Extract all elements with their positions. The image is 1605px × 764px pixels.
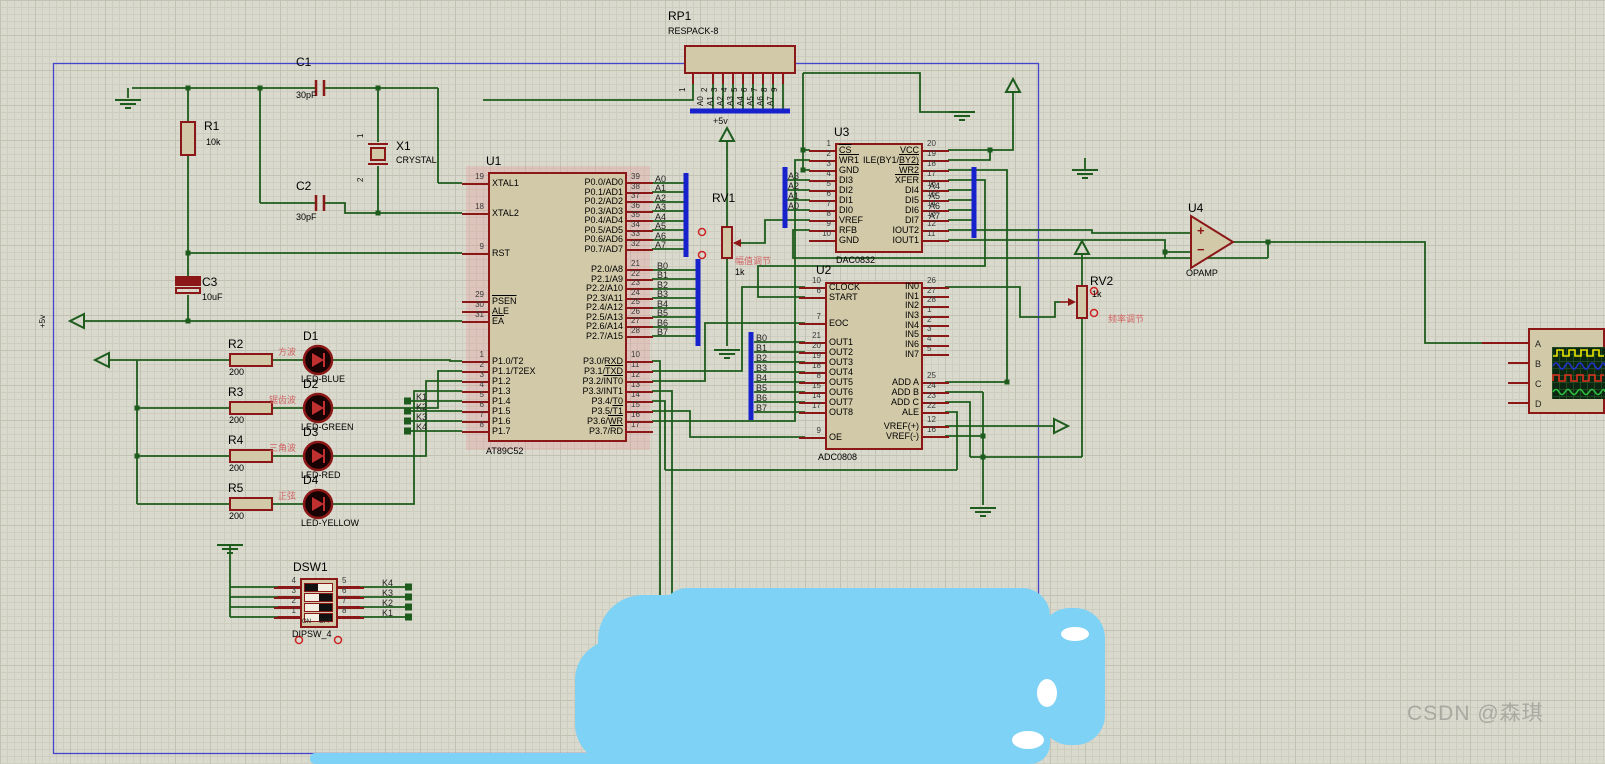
proteus-schematic-canvas: 19XTAL1 18XTAL2 9RST 29PSEN30ALE31EA 1P1…: [0, 0, 1605, 764]
marker-scribble: [0, 0, 1605, 764]
watermark: CSDN @森琪: [1407, 709, 1544, 719]
